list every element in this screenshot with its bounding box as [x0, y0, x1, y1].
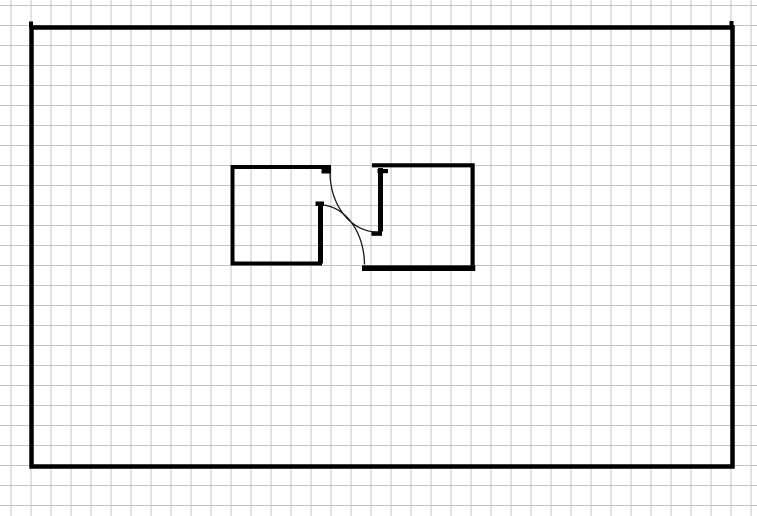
door-swing-arc-lower[interactable]	[323, 205, 365, 265]
right-room-wall[interactable]	[372, 165, 473, 268]
right-room-lintel-hinge-block	[378, 169, 389, 173]
outer-room-wall[interactable]	[32, 28, 733, 467]
left-room-wall[interactable]	[233, 167, 332, 264]
drawing-canvas[interactable]	[0, 0, 757, 516]
floorplan-drawing[interactable]	[0, 0, 757, 516]
outer-corner-mark-top-left	[29, 22, 33, 29]
door-swing-arc-upper[interactable]	[330, 173, 377, 233]
outer-corner-mark-top-right	[730, 21, 734, 28]
